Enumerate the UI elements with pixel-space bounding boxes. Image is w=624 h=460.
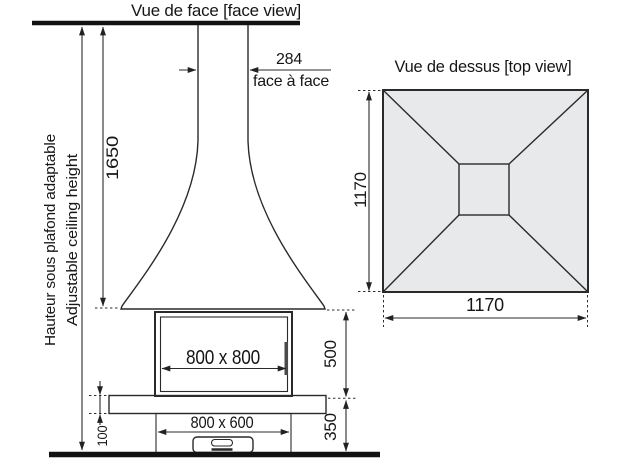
dim-350-value: 350 — [321, 413, 340, 441]
technical-drawing: Vue de face [face view] Vue de dessus [t… — [0, 0, 624, 460]
drawer-handle-icon — [212, 440, 233, 447]
firebox-door-handle — [285, 342, 289, 375]
hearth-slab — [109, 396, 326, 414]
dim-1650-value: 1650 — [103, 136, 122, 180]
dim-firebox-value: 800 x 800 — [186, 347, 260, 369]
dim-284-value: 284 — [276, 51, 302, 68]
dim-284-sublabel: face à face — [253, 73, 329, 90]
dim-500-value: 500 — [321, 340, 340, 368]
top-view — [358, 90, 588, 327]
dim-100-value: 100 — [94, 425, 110, 446]
ceiling-label-en: Adjustable ceiling height — [65, 154, 81, 326]
dim-1170-left-value: 1170 — [351, 172, 370, 208]
ceiling-label-fr: Hauteur sous plafond adaptable — [43, 134, 59, 346]
fireplace-dimension-diagram: Vue de face [face view] Vue de dessus [t… — [0, 0, 624, 460]
dim-1170-bottom-value: 1170 — [466, 295, 504, 315]
face-view-title: Vue de face [face view] — [131, 2, 301, 20]
dim-base-value: 800 x 600 — [191, 413, 254, 432]
top-view-title: Vue de dessus [top view] — [395, 58, 572, 76]
